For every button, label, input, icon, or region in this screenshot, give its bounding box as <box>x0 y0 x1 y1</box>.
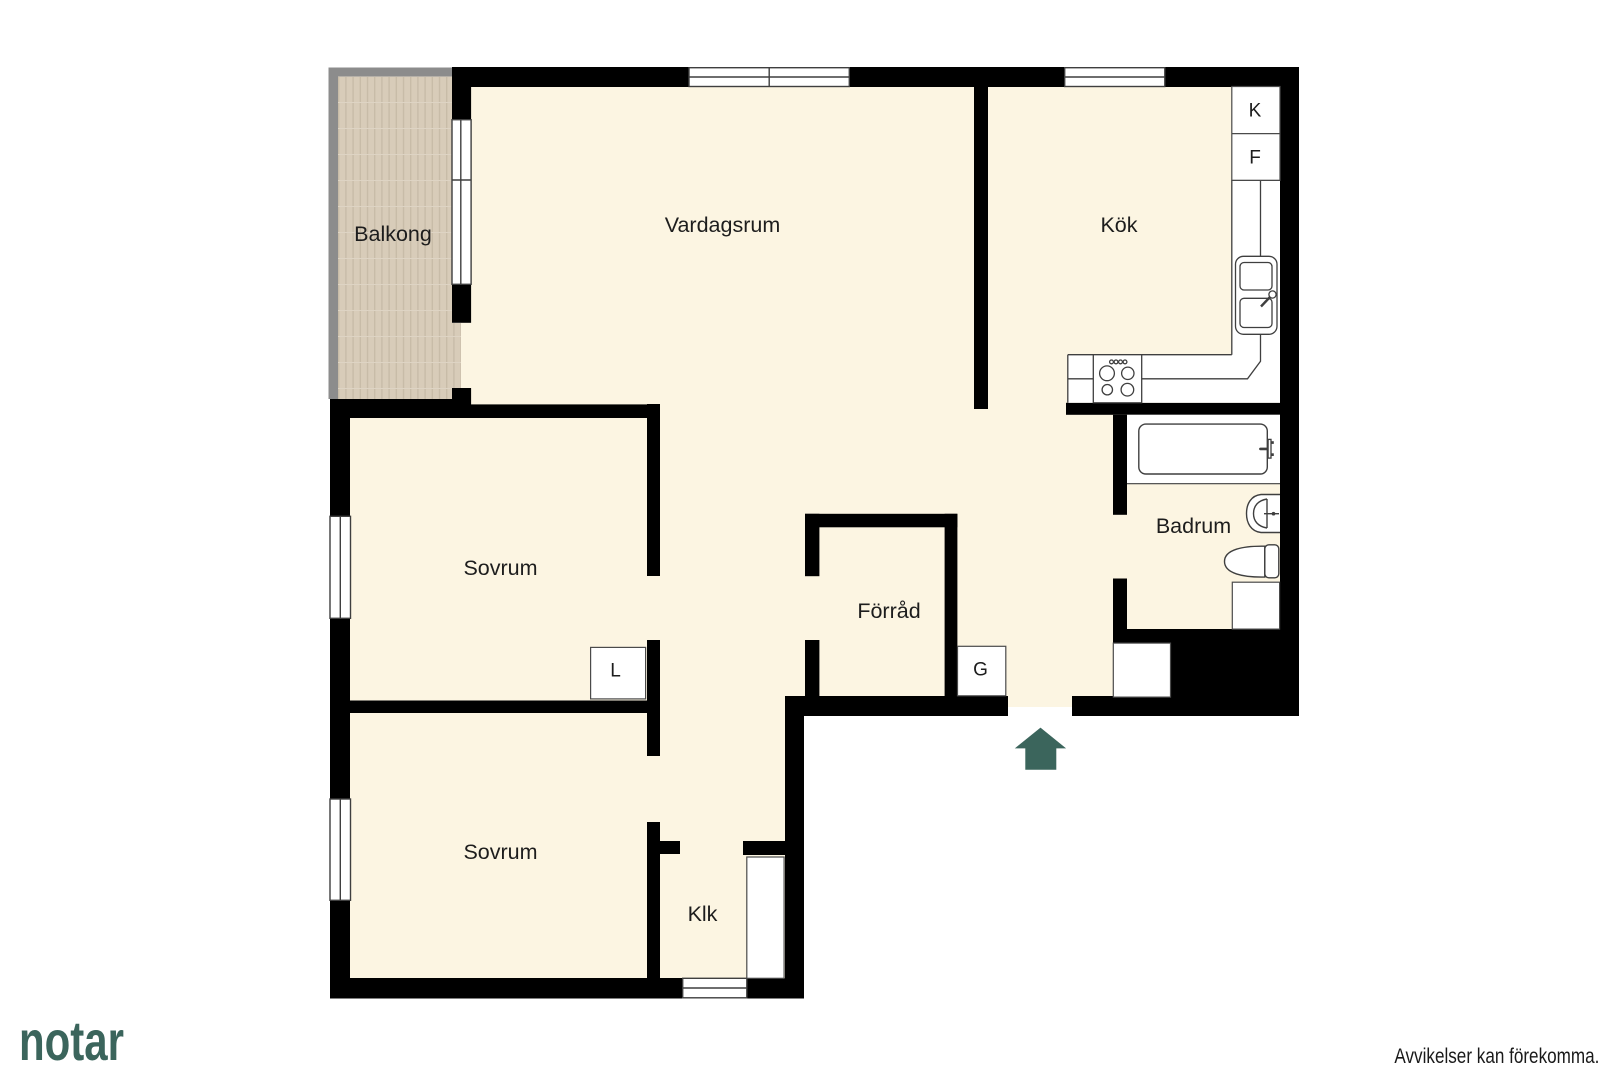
svg-text:Vardagsrum: Vardagsrum <box>665 213 781 237</box>
svg-text:G: G <box>973 660 988 681</box>
svg-text:Balkong: Balkong <box>354 222 432 246</box>
svg-text:notar: notar <box>19 1009 124 1072</box>
svg-text:Klk: Klk <box>688 902 718 926</box>
svg-text:Kök: Kök <box>1100 213 1137 237</box>
svg-text:F: F <box>1249 148 1261 169</box>
svg-text:Sovrum: Sovrum <box>463 556 537 580</box>
svg-text:Förråd: Förråd <box>857 599 920 623</box>
svg-text:Avvikelser kan förekomma.: Avvikelser kan förekomma. <box>1394 1045 1599 1068</box>
svg-text:Badrum: Badrum <box>1156 514 1231 538</box>
svg-text:K: K <box>1249 101 1262 122</box>
svg-text:Sovrum: Sovrum <box>463 840 537 864</box>
svg-text:L: L <box>610 661 621 682</box>
